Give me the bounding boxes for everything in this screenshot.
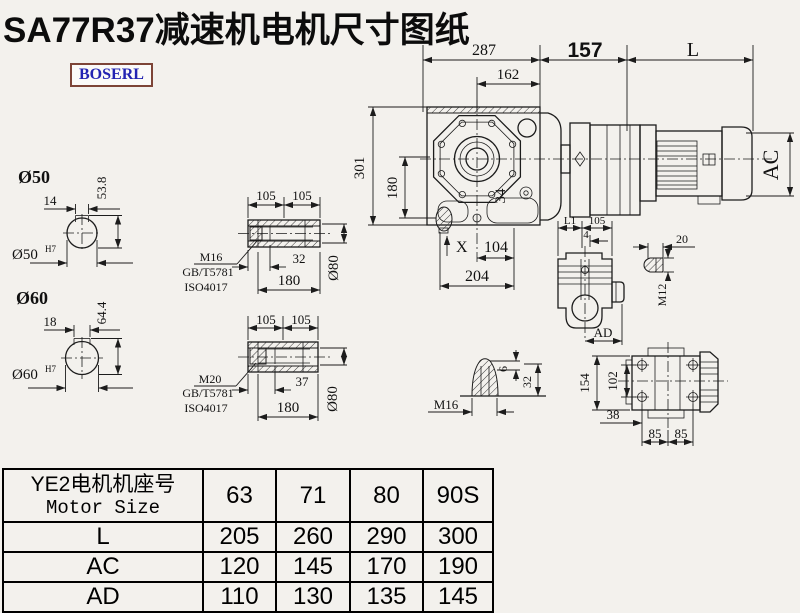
cell-AC-80: 170 <box>350 552 423 582</box>
hollow16-bolt: M16 <box>200 250 223 264</box>
gearbox-front-view <box>420 100 772 262</box>
shaft50-label: Ø50 <box>18 167 50 187</box>
cell-L-71: 260 <box>276 522 350 552</box>
table-header-cn: YE2电机机座号 <box>4 472 202 497</box>
dim-L: L <box>687 39 699 61</box>
dim-AC: AC <box>758 150 783 181</box>
dim-301: 301 <box>352 157 368 180</box>
hollow20-std2: ISO4017 <box>184 401 227 415</box>
table-header-en: Motor Size <box>4 497 202 520</box>
hollow16-outer: Ø80 <box>326 255 342 281</box>
shaft-section-60: Ø60 18 64.4 Ø60 H7 <box>12 288 133 392</box>
shaft50-bore-tol: H7 <box>45 244 56 254</box>
m12-plug-dimensions <box>633 243 695 280</box>
row-label-AD: AD <box>3 582 203 612</box>
shaft60-dimensions <box>28 325 133 392</box>
shaft50-bore: Ø50 <box>12 247 38 263</box>
cone-plug-d32: 32 <box>520 376 534 388</box>
table-col-63: 63 <box>203 469 276 522</box>
side-view-105: 105 <box>589 215 606 227</box>
hollow20-105-right: 105 <box>291 312 311 327</box>
shaft50-dimensions <box>30 204 133 267</box>
cell-AC-71: 145 <box>276 552 350 582</box>
hollow16-std2: ISO4017 <box>184 280 227 294</box>
cone-plug-d6: 6 <box>496 366 510 372</box>
side-view-AD: AD <box>594 325 613 340</box>
cone-plug-view: 6 32 M16 <box>428 350 546 416</box>
cell-L-90S: 300 <box>423 522 493 552</box>
left-dimension-lines <box>368 107 436 225</box>
bottom-view-85-right: 85 <box>675 426 688 441</box>
hollow-shaft-m16: 105 105 32 180 Ø80 M16 GB/T5781 ISO4017 <box>182 188 347 294</box>
bottom-view-154: 154 <box>577 373 592 393</box>
shaft50-keyway-width: 14 <box>44 193 58 208</box>
m12-plug-thread: M12 <box>655 284 669 307</box>
table-row-L: L 205 260 290 300 <box>3 522 493 552</box>
bottom-view-38: 38 <box>607 407 620 422</box>
row-label-L: L <box>3 522 203 552</box>
cell-L-63: 205 <box>203 522 276 552</box>
hollow16-length: 180 <box>278 273 301 289</box>
hollow-shaft-m20: 105 105 37 180 Ø80 M20 GB/T5781 ISO4017 <box>182 312 347 421</box>
hollow16-std1: GB/T5781 <box>182 265 233 279</box>
brake-adapter <box>561 123 640 217</box>
cell-L-80: 290 <box>350 522 423 552</box>
hollow16-depth: 32 <box>293 251 306 266</box>
label-x: X <box>456 239 468 256</box>
shaft60-bore: Ø60 <box>12 367 38 383</box>
m12-plug-d20: 20 <box>676 232 688 246</box>
hollow20-length: 180 <box>277 400 300 416</box>
cell-AC-63: 120 <box>203 552 276 582</box>
table-col-80: 80 <box>350 469 423 522</box>
hollow20-bolt: M20 <box>199 372 222 386</box>
hollow20-depth: 37 <box>296 374 310 389</box>
cell-AD-80: 135 <box>350 582 423 612</box>
shaft60-bore-tol: H7 <box>45 364 56 374</box>
dim-180: 180 <box>385 177 401 200</box>
dim-204: 204 <box>465 268 489 285</box>
table-row-AD: AD 110 130 135 145 <box>3 582 493 612</box>
hollow20-std1: GB/T5781 <box>182 386 233 400</box>
table-row-AC: AC 120 145 170 190 <box>3 552 493 582</box>
dim-157: 157 <box>567 39 602 62</box>
bottom-view-102: 102 <box>605 371 620 391</box>
cell-AC-90S: 190 <box>423 552 493 582</box>
motor <box>640 125 752 204</box>
shaft50-height: 53.8 <box>94 177 109 200</box>
shaft60-height: 64.4 <box>94 301 109 324</box>
bottom-view-85-left: 85 <box>649 426 662 441</box>
cell-AD-71: 130 <box>276 582 350 612</box>
table-header-row: YE2电机机座号 Motor Size 63 71 80 90S <box>3 469 493 522</box>
gearbox-side-view: L1 105 4 AD <box>558 215 624 345</box>
shaft-section-50: Ø50 14 53.8 Ø50 H7 <box>12 167 133 267</box>
side-view-L1: L1 <box>564 215 576 227</box>
table-col-90S: 90S <box>423 469 493 522</box>
row-label-AC: AC <box>3 552 203 582</box>
cell-AD-90S: 145 <box>423 582 493 612</box>
shaft60-label: Ø60 <box>16 288 48 308</box>
cell-AD-63: 110 <box>203 582 276 612</box>
table-col-71: 71 <box>276 469 350 522</box>
hollow20-outer: Ø80 <box>325 386 341 412</box>
shaft60-keyway-width: 18 <box>44 314 57 329</box>
dimension-table: YE2电机机座号 Motor Size 63 71 80 90S L 205 2… <box>2 468 494 613</box>
cone-plug-thread: M16 <box>434 397 459 412</box>
dim-34: 34 <box>493 188 509 204</box>
side-view-4: 4 <box>583 229 589 241</box>
dim-287: 287 <box>472 42 496 59</box>
dim-162: 162 <box>497 67 520 83</box>
m12-plug-view: 20 M12 <box>633 232 695 306</box>
hollow16-105-right: 105 <box>292 188 312 203</box>
table-header-motor-size: YE2电机机座号 Motor Size <box>3 469 203 522</box>
gearbox-bottom-view: 154 102 38 85 85 <box>577 342 728 446</box>
hollow20-105-left: 105 <box>256 312 276 327</box>
dim-104: 104 <box>484 239 508 256</box>
hollow16-105-left: 105 <box>256 188 276 203</box>
